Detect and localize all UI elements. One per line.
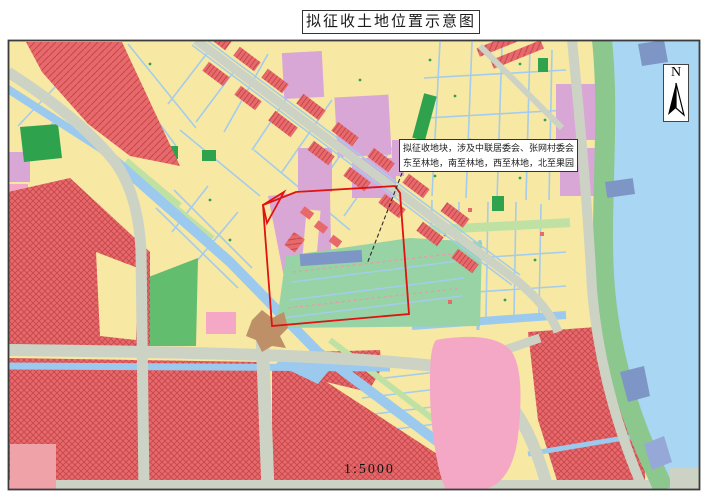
north-indicator: N bbox=[663, 64, 689, 122]
sheet: 拟征收土地位置示意图 拟征收地块，涉及中联居委会、张网村委会 东至林地，南至林地… bbox=[0, 0, 704, 498]
annotation-line-2: 东至林地，南至林地，西至林地，北至果园 bbox=[403, 156, 574, 171]
page-title: 拟征收土地位置示意图 bbox=[302, 10, 480, 34]
annotation-box: 拟征收地块，涉及中联居委会、张网村委会 东至林地，南至林地，西至林地，北至果园 bbox=[399, 139, 578, 172]
map-canvas bbox=[0, 0, 704, 498]
map: 拟征收土地位置示意图 拟征收地块，涉及中联居委会、张网村委会 东至林地，南至林地… bbox=[0, 0, 704, 498]
annotation-line-1: 拟征收地块，涉及中联居委会、张网村委会 bbox=[403, 141, 574, 156]
north-label: N bbox=[664, 65, 688, 81]
north-arrow-icon bbox=[664, 81, 688, 119]
scale-label: 1:5000 bbox=[344, 462, 395, 478]
